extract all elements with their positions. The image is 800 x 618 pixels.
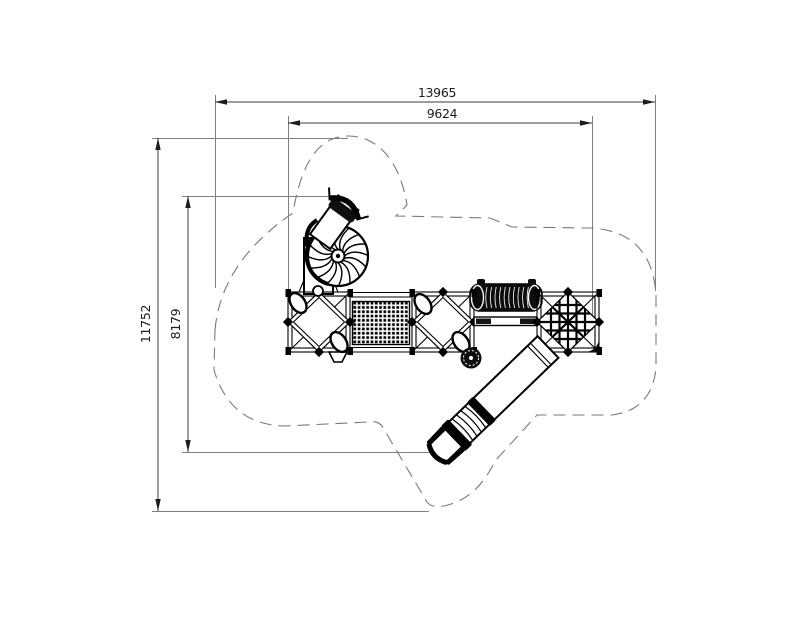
- arrowhead-bottom: [155, 499, 160, 511]
- arrowhead-bottom: [185, 440, 190, 452]
- spiral-slide: [299, 187, 369, 294]
- middle-deck: [407, 287, 479, 357]
- balance-beam: [474, 317, 537, 326]
- arrowhead-left: [215, 99, 227, 104]
- playground-structure: [283, 187, 604, 468]
- arrowhead-right: [643, 99, 655, 104]
- climbing-net: [350, 293, 412, 353]
- arrowhead-top: [185, 196, 190, 208]
- dimension-label-total-width: 13965: [418, 85, 456, 100]
- technical-drawing-page: 13965 9624 11752 8179: [0, 0, 800, 618]
- dimension-label-structure-width: 9624: [427, 106, 458, 121]
- spinner-wheel: [461, 348, 482, 369]
- arrowhead-right: [580, 120, 592, 125]
- playground-plan-view-drawing: 13965 9624 11752 8179: [0, 0, 800, 618]
- column-flange: [313, 286, 323, 296]
- left-deck: [283, 287, 355, 362]
- dimension-label-total-height: 11752: [138, 305, 153, 343]
- tube-lug: [528, 279, 536, 285]
- platform-row: [283, 279, 604, 362]
- tube-lug: [477, 279, 485, 285]
- arrowhead-top: [155, 138, 160, 150]
- deck-step: [329, 352, 347, 362]
- dimension-label-structure-height: 8179: [168, 308, 183, 339]
- arrowhead-left: [288, 120, 300, 125]
- net-mesh: [353, 302, 410, 345]
- crawl-tube: [470, 279, 542, 311]
